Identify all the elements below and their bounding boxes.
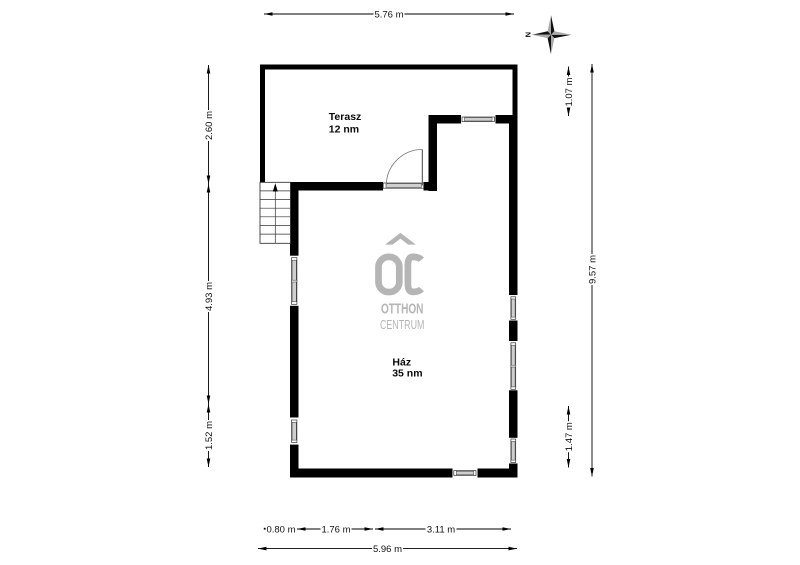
svg-text:1.52 m: 1.52 m [204, 421, 215, 450]
svg-text:12 nm: 12 nm [329, 123, 359, 135]
svg-text:1.07 m: 1.07 m [564, 77, 575, 106]
svg-text:5.96 m: 5.96 m [373, 544, 402, 555]
svg-text:9.57 m: 9.57 m [587, 255, 598, 284]
svg-text:4.93 m: 4.93 m [204, 282, 215, 311]
svg-text:N: N [524, 32, 533, 37]
svg-text:CENTRUM: CENTRUM [380, 317, 425, 332]
svg-text:5.76 m: 5.76 m [374, 9, 403, 20]
svg-text:2.60 m: 2.60 m [204, 111, 215, 140]
svg-text:OTTHON: OTTHON [381, 302, 424, 318]
svg-text:35 nm: 35 nm [392, 367, 422, 379]
svg-text:1.47 m: 1.47 m [564, 422, 575, 451]
svg-text:1.76 m: 1.76 m [321, 524, 350, 535]
svg-text:Terasz: Terasz [329, 111, 362, 123]
svg-text:3.11 m: 3.11 m [427, 524, 455, 535]
svg-text:0.80 m: 0.80 m [266, 524, 295, 535]
